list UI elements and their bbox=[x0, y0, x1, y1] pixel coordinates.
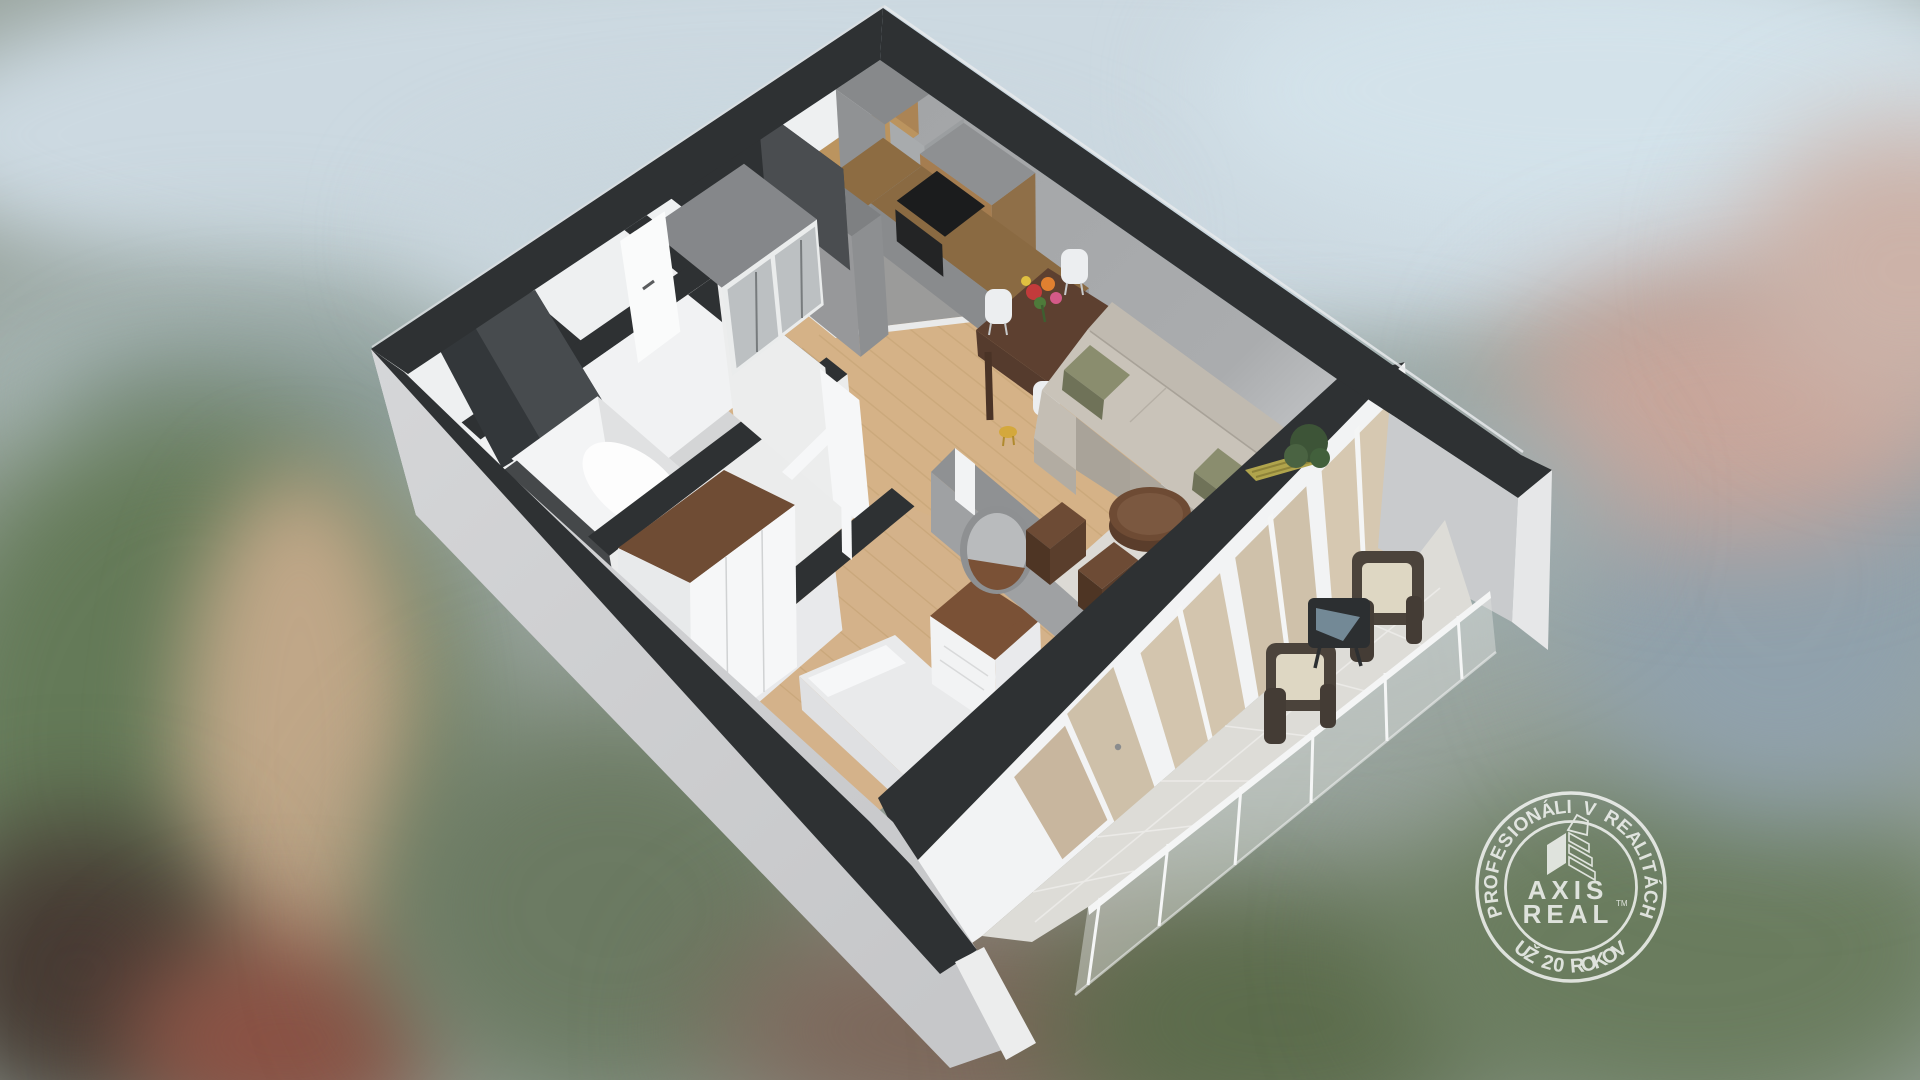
svg-text:I: I bbox=[1566, 797, 1572, 818]
svg-text:REAL: REAL bbox=[1523, 899, 1614, 929]
svg-text:Á: Á bbox=[1639, 874, 1662, 889]
svg-text:TM: TM bbox=[1616, 899, 1628, 908]
svg-text:H: H bbox=[1635, 901, 1659, 920]
svg-text:T: T bbox=[1636, 859, 1659, 876]
svg-text:O: O bbox=[1481, 874, 1503, 890]
svg-text:0: 0 bbox=[1552, 954, 1566, 977]
